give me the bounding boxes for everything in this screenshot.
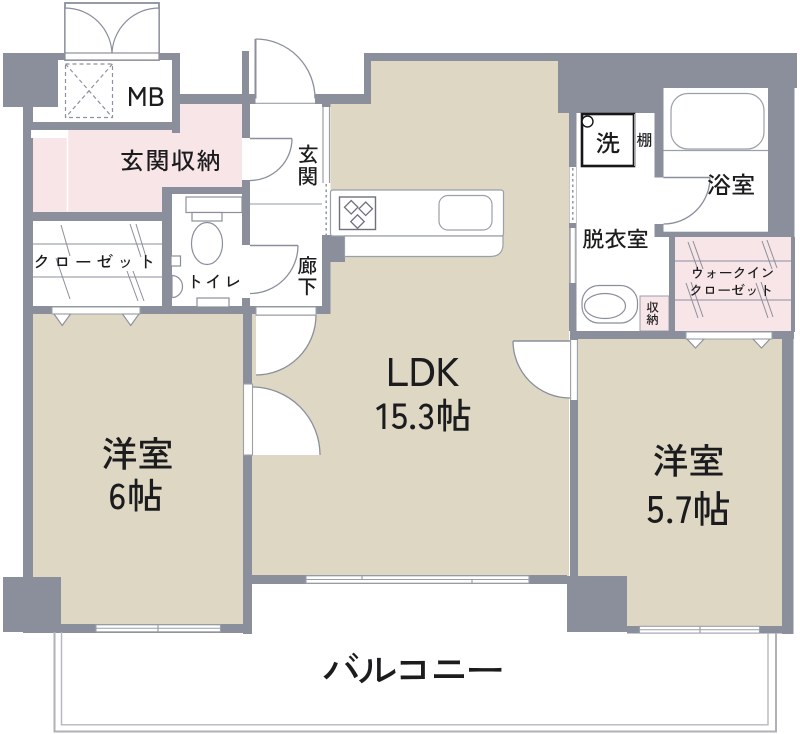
svg-text:MB: MB [127,75,165,114]
svg-text:バルコニー: バルコニー [321,639,502,697]
svg-text:6帖: 6帖 [108,468,164,520]
svg-text:15.3帖: 15.3帖 [376,388,472,440]
svg-text:洗: 洗 [596,124,620,159]
svg-text:クローゼット: クローゼット [689,281,773,301]
svg-text:下: 下 [298,271,318,300]
svg-text:クローゼット: クローゼット [33,248,159,273]
svg-text:納: 納 [646,309,659,328]
svg-text:脱衣室: 脱衣室 [582,222,648,254]
svg-text:浴室: 浴室 [707,166,755,201]
svg-text:棚: 棚 [636,127,652,151]
svg-text:洋室: 洋室 [652,433,724,485]
svg-text:5.7帖: 5.7帖 [646,479,731,534]
svg-text:玄関収納: 玄関収納 [120,142,222,177]
svg-text:トイレ: トイレ [186,268,243,293]
svg-text:関: 関 [298,161,319,191]
